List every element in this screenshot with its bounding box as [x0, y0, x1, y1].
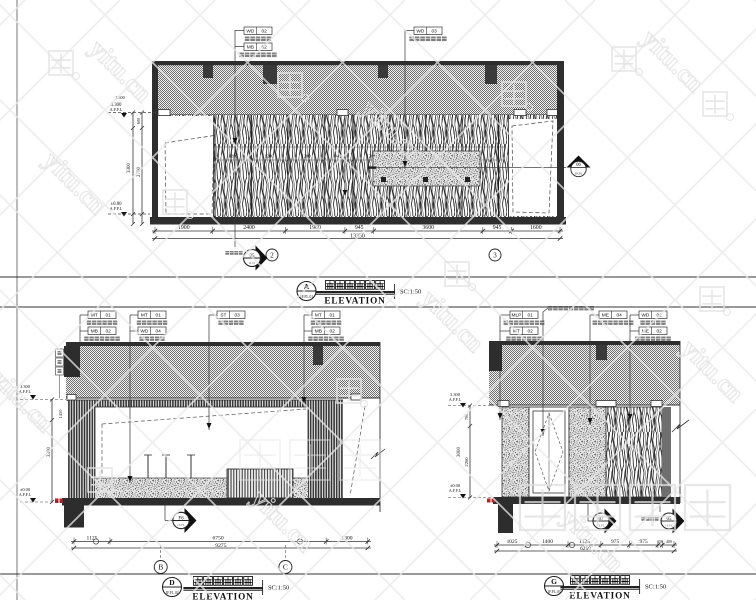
svg-text:WD: WD [140, 329, 149, 335]
svg-text:F6: F6 [178, 516, 184, 521]
svg-text:9275: 9275 [215, 543, 226, 549]
svg-text:03: 03 [235, 313, 241, 319]
svg-text:02: 02 [657, 329, 663, 335]
svg-text:MLP: MLP [511, 313, 521, 319]
svg-text:3: 3 [493, 252, 497, 260]
svg-text:SC:1:50: SC:1:50 [400, 289, 421, 296]
svg-text:A.F.F.L: A.F.F.L [449, 488, 462, 493]
svg-text:MT: MT [141, 313, 148, 319]
svg-text:150: 150 [657, 540, 663, 544]
svg-text:04: 04 [617, 313, 623, 319]
svg-text:945: 945 [355, 225, 364, 231]
svg-text:3300: 3300 [127, 163, 132, 174]
svg-text:1F.FL.01: 1F.FL.01 [300, 295, 313, 299]
svg-text:1200: 1200 [264, 154, 274, 159]
svg-text:A.F.F.L: A.F.F.L [19, 492, 32, 497]
svg-text:02: 02 [330, 329, 336, 335]
svg-text:1400: 1400 [542, 539, 553, 545]
svg-text:2260: 2260 [464, 457, 469, 467]
svg-text:975: 975 [640, 539, 648, 545]
svg-text:D.01: D.01 [249, 261, 256, 265]
svg-text:1F.FL: 1F.FL [665, 523, 673, 527]
svg-text:ELEVATION: ELEVATION [192, 592, 253, 600]
svg-text:400: 400 [666, 540, 672, 544]
svg-text:1F.FL.02: 1F.FL.02 [165, 591, 178, 595]
svg-text:WD: WD [416, 29, 425, 35]
svg-text:A.F.F.L: A.F.F.L [449, 397, 462, 402]
svg-text:01: 01 [156, 313, 162, 319]
svg-text:ELEVATION: ELEVATION [324, 296, 385, 306]
svg-text:C: C [283, 563, 288, 572]
svg-text:1200: 1200 [301, 154, 311, 159]
svg-text:MB: MB [247, 45, 254, 51]
svg-text:D: D [169, 578, 175, 587]
svg-text:04: 04 [156, 329, 162, 335]
svg-text:1F.FL: 1F.FL [177, 523, 185, 527]
svg-text:600: 600 [136, 118, 141, 124]
svg-text:02: 02 [106, 329, 112, 335]
svg-text:ME: ME [602, 313, 609, 319]
svg-text:3600: 3600 [422, 225, 434, 231]
svg-text:WD: WD [641, 313, 650, 319]
svg-text:1F.FL.03: 1F.FL.03 [547, 590, 560, 594]
svg-text:B: B [158, 563, 163, 572]
svg-text:1200: 1200 [228, 154, 238, 159]
svg-text:06: 06 [576, 163, 581, 168]
svg-text:A.F.F.L: A.F.F.L [110, 107, 123, 112]
svg-text:2400: 2400 [243, 225, 255, 231]
svg-text:1025: 1025 [507, 539, 518, 545]
svg-text:3000: 3000 [457, 447, 462, 458]
svg-text:WD: WD [246, 29, 255, 35]
svg-text:03: 03 [432, 29, 438, 35]
svg-text:02: 02 [528, 329, 534, 335]
svg-text:1F.01: 1F.01 [575, 172, 583, 176]
svg-text:MB: MB [91, 329, 98, 335]
svg-text:945: 945 [493, 225, 502, 231]
svg-text:01: 01 [528, 313, 534, 319]
svg-text:A.F.F.L: A.F.F.L [110, 206, 123, 211]
svg-text:SC:1:50: SC:1:50 [645, 584, 666, 591]
svg-text:MT: MT [315, 313, 322, 319]
svg-text:2: 2 [270, 252, 274, 260]
svg-text:01: 01 [330, 313, 336, 319]
svg-text:SC:1:50: SC:1:50 [268, 585, 289, 592]
svg-text:G: G [551, 577, 557, 586]
svg-text:ELEVATION: ELEVATION [569, 591, 630, 600]
svg-text:1600: 1600 [530, 225, 542, 231]
svg-text:02: 02 [262, 29, 268, 35]
svg-text:ST: ST [220, 313, 226, 319]
svg-text:01: 01 [106, 313, 112, 319]
svg-text:6750: 6750 [213, 536, 224, 542]
svg-text:MB: MB [315, 329, 322, 335]
